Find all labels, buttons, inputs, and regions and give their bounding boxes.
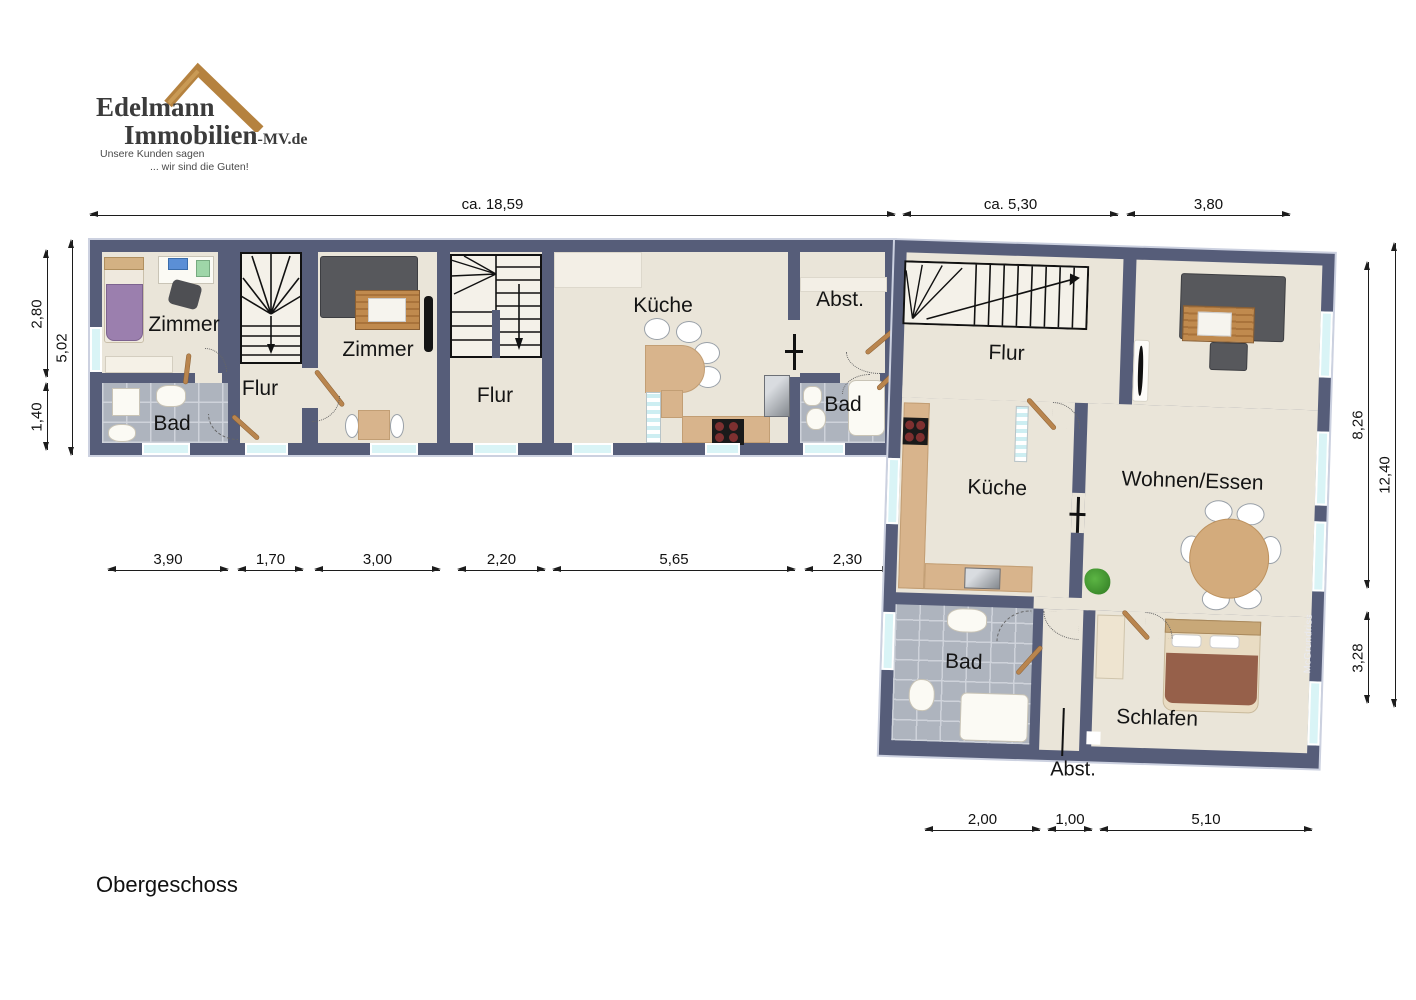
kitchen-sink <box>764 375 790 417</box>
chair <box>345 414 359 438</box>
window <box>142 443 190 455</box>
floorplan-page: Edelmann Immobilien-MV.de Unsere Kunden … <box>0 0 1416 1000</box>
dim-bot-3: 5,10 <box>1100 830 1312 831</box>
room-label-flur3: Flur <box>988 341 1025 366</box>
dim-left-502: 5,02 <box>72 240 73 455</box>
chair <box>676 321 702 343</box>
bed-blanket <box>1165 653 1259 706</box>
dim-mid-3: 3,00 <box>315 570 440 571</box>
staircase-icon <box>240 252 302 364</box>
burner <box>916 421 925 430</box>
room-label-flur2: Flur <box>477 384 513 408</box>
bed-blanket <box>106 284 143 341</box>
wall-niche <box>1086 731 1100 744</box>
burner <box>729 433 738 442</box>
window <box>1319 311 1333 377</box>
washing-machine <box>112 388 140 416</box>
desk-pad <box>196 260 210 277</box>
sink <box>947 608 988 633</box>
company-logo: Edelmann Immobilien-MV.de Unsere Kunden … <box>92 60 332 178</box>
kitchen-sink <box>964 567 1001 589</box>
room-label-kueche1: Küche <box>633 294 693 318</box>
kitchen-cabinet <box>554 252 642 288</box>
burner <box>905 432 914 441</box>
room-label-schlafen: Schlafen <box>1116 705 1198 732</box>
radiator <box>646 392 661 443</box>
dim-mid-2: 1,70 <box>238 570 303 571</box>
window <box>705 443 740 455</box>
window <box>90 327 102 372</box>
staircase-icon <box>450 254 542 358</box>
dim-bot-2: 1,00 <box>1048 830 1092 831</box>
stove <box>903 417 929 445</box>
window <box>881 612 895 670</box>
window <box>572 443 613 455</box>
window <box>886 458 900 524</box>
room-label-kueche2: Küche <box>967 475 1027 501</box>
dim-right-1240: 12,40 <box>1395 243 1396 707</box>
dim-mid-4: 2,20 <box>458 570 545 571</box>
dim-mid-1: 3,90 <box>108 570 228 571</box>
burner <box>729 422 738 431</box>
toilet <box>806 408 826 430</box>
toilet <box>108 424 136 442</box>
room-label-bad1: Bad <box>153 412 190 436</box>
dim-top-2: ca. 5,30 <box>903 215 1118 216</box>
logo-name-line1: Edelmann <box>96 94 215 121</box>
window <box>473 443 518 455</box>
dim-top-3: 3,80 <box>1127 215 1290 216</box>
door-opening <box>1033 597 1088 611</box>
burner <box>715 433 724 442</box>
kitchen-counter <box>645 345 705 393</box>
burner <box>715 422 724 431</box>
right-wing: Flur Wohnen/Essen Küche Bad Schlafen McG… <box>879 240 1335 769</box>
staircase-icon <box>902 260 1089 330</box>
pillow <box>1209 635 1239 649</box>
dresser <box>105 356 173 373</box>
window <box>370 443 418 455</box>
table-top <box>1197 312 1232 337</box>
dim-mid-6: 2,30 <box>805 570 890 571</box>
dim-top-1: ca. 18,59 <box>90 215 895 216</box>
door-threshold <box>785 350 803 353</box>
radiator <box>1014 406 1029 462</box>
window <box>1307 681 1321 745</box>
logo-tagline-1: Unsere Kunden sagen <box>100 148 205 160</box>
chair <box>644 318 670 340</box>
wardrobe <box>1095 615 1125 680</box>
bed-headboard <box>104 257 144 270</box>
sink <box>803 386 822 406</box>
pillow <box>1171 634 1201 648</box>
room-label-wohnen: Wohnen/Essen <box>1121 467 1264 495</box>
door-opening <box>1130 600 1155 613</box>
dim-bot-1: 2,00 <box>925 830 1040 831</box>
toilet <box>908 679 935 712</box>
door-threshold <box>1069 513 1085 516</box>
logo-name-suffix: -MV.de <box>258 131 308 148</box>
window <box>1315 431 1329 505</box>
tv <box>424 296 433 352</box>
page-title: Obergeschoss <box>96 872 238 898</box>
sink <box>156 385 186 407</box>
room-label-abst1: Abst. <box>816 288 864 312</box>
dim-mid-5: 5,65 <box>553 570 795 571</box>
table-top <box>368 298 406 322</box>
monitor <box>168 258 188 270</box>
bathtub <box>959 692 1028 742</box>
left-wing: Zimmer Flur Bad Zimmer Flur Küche Abst. … <box>90 240 895 455</box>
door-swing <box>1052 402 1081 429</box>
window <box>803 443 845 455</box>
stove <box>712 419 744 445</box>
dim-left-140: 1,40 <box>47 383 48 450</box>
burner <box>916 433 925 442</box>
ottoman <box>1209 342 1248 371</box>
logo-tagline-2: ... wir sind die Guten! <box>150 161 249 173</box>
kitchen-counter <box>661 390 683 418</box>
room-label-zimmer2: Zimmer <box>342 338 413 362</box>
door-opening <box>195 373 222 383</box>
logo-name-line2: Immobilien-MV.de <box>124 122 307 149</box>
window <box>1312 521 1326 591</box>
room-label-zimmer1: Zimmer <box>148 313 219 337</box>
room-label-abst2: Abst. <box>1050 759 1096 782</box>
room-label-flur1: Flur <box>242 377 278 401</box>
room-label-bad3: Bad <box>945 650 983 675</box>
watermark: McGrundriss <box>1302 600 1316 688</box>
dim-right-328: 3,28 <box>1368 612 1369 703</box>
burner <box>905 420 914 429</box>
dim-right-826: 8,26 <box>1368 262 1369 588</box>
window <box>245 443 288 455</box>
room-label-bad2: Bad <box>824 393 861 417</box>
dim-left-280: 2,80 <box>47 250 48 377</box>
chair <box>390 414 404 438</box>
dining-table <box>358 410 390 440</box>
